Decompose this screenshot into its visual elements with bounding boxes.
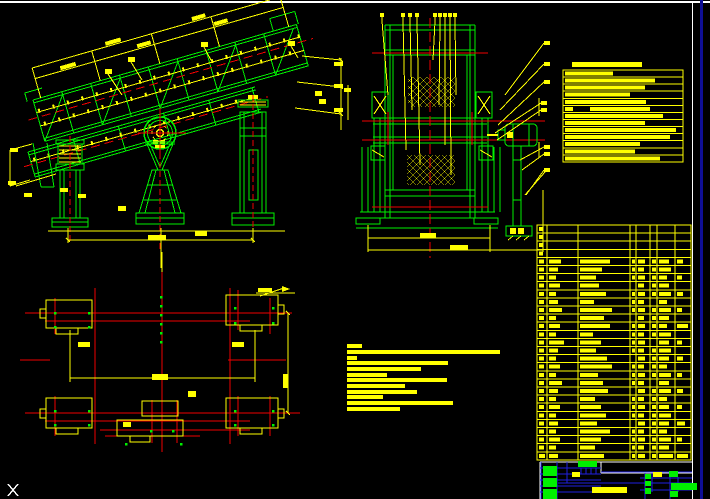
dim-text [78,342,90,347]
table-cell-text [539,454,545,458]
table-cell-text [539,397,544,401]
callout-balloon [544,152,550,156]
line [455,21,456,95]
table-cell-text [652,276,656,280]
table-cell-text [549,430,556,434]
requirement-line [347,401,453,405]
table-cell-text [638,405,645,409]
callout-marker [408,13,412,17]
table-cell-text [659,446,669,450]
table-cell-text [652,446,656,450]
table-cell-text [539,276,544,280]
table-cell-text [632,413,635,417]
dim-text [232,342,244,347]
table-cell-text [677,276,682,280]
table-cell-text [539,373,544,377]
table-cell-text [652,324,656,328]
tick-mark [150,430,153,433]
notes-line [565,79,655,83]
table-cell-text [638,413,644,417]
callout-marker [380,13,384,17]
table-cell-text [677,324,688,328]
requirement-line [347,361,448,365]
table-cell-text [549,259,561,263]
tick-mark [272,410,275,413]
table-cell-text [677,454,688,458]
table-cell-text [549,421,558,425]
table-cell-text [638,332,644,336]
callout-balloon [544,62,550,66]
table-cell-text [677,389,683,393]
table-cell-text [638,397,644,401]
table-cell-text [638,268,644,272]
table-cell-text [638,292,645,296]
parts-list-table [537,225,691,460]
table-cell-text [638,316,644,320]
requirement-line [347,373,387,377]
notes-line [565,135,670,139]
table-cell-text [677,340,682,344]
notes-line [565,107,573,111]
table-cell-text [632,397,635,401]
table-cell-text [659,381,669,385]
table-cell-text [659,268,671,272]
table-cell-text [549,381,562,385]
table-cell-text [580,446,595,450]
dim-text [148,235,166,240]
line [522,154,544,170]
table-cell-text [632,373,635,377]
tick-mark [54,312,57,315]
table-cell-text [549,397,556,401]
table-cell-text [659,332,671,336]
table-cell-text [539,381,544,385]
dim-text [152,374,168,380]
title-block [540,461,697,499]
title-text [592,487,627,493]
line [520,147,544,160]
dim-text [283,374,288,388]
dim-text [118,206,126,211]
table-cell-text [677,405,682,409]
table-cell-text [580,381,603,385]
table-cell-text [638,357,645,361]
table-cell-text [580,373,598,377]
table-cell-text [659,284,669,288]
table-cell-text [638,300,644,304]
table-cell-text [580,365,612,369]
table-cell-text [632,446,635,450]
side-view-dimensions [10,46,348,268]
line [450,21,451,175]
table-cell-text [539,405,544,409]
tick-mark [88,326,91,329]
notes-line [565,100,646,104]
table-cell-text [632,268,635,272]
callout-balloon [544,80,550,84]
table-cell-text [580,324,610,328]
tick-mark [272,307,275,310]
dim-text [8,181,16,185]
technical-notes-box [563,62,683,162]
tick-mark [160,332,163,335]
table-cell-text [677,292,683,296]
table-cell-text [580,430,610,434]
table-cell-text [539,365,544,369]
dim-text [105,69,112,74]
table-cell-text [580,357,607,361]
table-cell-text [549,324,560,328]
table-cell-text [652,454,656,458]
table-cell-text [580,316,604,320]
tick-mark [180,443,183,446]
table-cell-text [638,381,644,385]
table-cell-text [659,454,673,458]
table-cell-text [580,454,604,458]
table-cell-text [539,316,544,320]
north-flag [282,286,290,292]
table-cell-text [539,421,544,425]
table-cell-text [580,421,597,425]
dim-text [188,391,196,397]
table-cell-text [638,259,645,263]
callout-marker [453,13,457,17]
tick-mark [54,424,57,427]
screen-mesh-upper [408,77,455,107]
callout-balloon [544,41,550,45]
table-cell-text [549,268,558,272]
table-cell-text [539,251,543,255]
tick-mark [54,410,57,413]
table-cell-text [632,292,635,296]
dim-text [315,91,322,96]
table-cell-text [580,268,602,272]
table-cell-text [539,332,544,336]
table-cell-text [659,373,671,377]
table-cell-text [632,438,635,442]
notes-line [565,121,645,125]
dim-text [258,288,272,292]
tick-mark [172,430,175,433]
technical-requirements-list [347,344,500,411]
table-cell-text [580,284,599,288]
table-cell-text [659,421,669,425]
table-cell-text [549,446,556,450]
table-cell-text [659,365,667,369]
table-cell-text [652,413,656,417]
table-cell-text [549,308,562,312]
tick-mark [88,312,91,315]
dim-text [128,57,135,62]
table-cell-text [638,284,644,288]
dim-text [334,84,343,88]
table-cell-text [580,413,606,417]
callout-marker [401,13,405,17]
dim-text [10,148,18,152]
table-cell-text [539,227,543,231]
table-cell-text [549,389,558,393]
table-cell-text [632,381,635,385]
table-cell-text [652,332,656,336]
table-cell-text [638,340,645,344]
title-text [653,472,662,477]
callout-marker [433,13,437,17]
table-cell-text [652,357,656,361]
table-cell-text [632,276,635,280]
table-cell-text [632,349,635,353]
dim-text [195,231,207,236]
table-cell-text [549,349,558,353]
notes-line [565,93,630,97]
table-cell-text [539,243,543,247]
screen-mesh-lower [407,155,455,185]
table-cell-text [539,357,544,361]
notes-line [565,72,613,76]
table-cell-text [580,397,595,401]
table-cell-text [659,292,671,296]
table-cell-text [652,284,656,288]
table-cell-text [638,276,645,280]
table-cell-text [652,365,656,369]
title-text [645,481,651,486]
callout-balloon [544,168,550,172]
requirement-line [347,384,405,388]
table-cell-text [638,454,645,458]
requirement-line [347,407,400,411]
requirement-line [347,350,500,354]
table-cell-text [659,340,669,344]
table-cell-text [580,308,612,312]
table-cell-text [652,316,656,320]
dim-text [201,42,208,47]
table-cell-text [539,292,544,296]
notes-line [565,156,660,160]
table-cell-text [638,324,645,328]
notes-line [565,128,676,132]
plan-dimensions [70,252,295,415]
table-cell-text [638,421,645,425]
dim-text [60,188,68,192]
table-cell-text [638,389,645,393]
table-cell-text [549,365,560,369]
table-cell-text [632,324,635,328]
table-cell-text [677,438,682,442]
table-cell-text [652,430,656,434]
table-cell-text [659,413,671,417]
table-cell-text [580,259,610,263]
cad-viewport[interactable] [0,0,710,499]
table-cell-text [539,340,544,344]
table-cell-text [677,259,683,263]
notes-line [565,114,663,118]
tick-mark [272,424,275,427]
table-cell-text [549,405,560,409]
tick-mark [234,322,237,325]
table-cell-text [632,308,635,312]
notes-line [565,149,635,153]
line [497,110,541,140]
line [403,21,406,150]
window-edge [700,0,703,499]
table-cell-text [549,357,556,361]
notes-line [590,107,650,111]
table-cell-text [659,300,667,304]
tick-mark [160,341,163,344]
table-cell-text [549,340,564,344]
table-cell-text [539,308,544,312]
table-cell-text [580,349,596,353]
table-cell-text [549,316,556,320]
notes-title [572,62,642,67]
table-cell-text [549,300,558,304]
drawing-frame [0,2,710,499]
table-cell-text [580,389,608,393]
dim-text [24,193,32,197]
table-cell-text [549,373,556,377]
table-cell-text [539,349,544,353]
tick-mark [88,424,91,427]
title-text [669,471,678,477]
table-cell-text [549,454,558,458]
table-cell-text [539,300,544,304]
table-cell-text [659,349,671,353]
table-cell-text [677,357,683,361]
side-view [10,0,348,268]
table-cell-text [632,332,635,336]
dim-text [450,245,468,250]
dim-text [123,422,131,427]
table-cell-text [580,340,601,344]
tick-mark [160,296,163,299]
callout-marker [443,13,447,17]
dim-text [334,62,343,66]
tick-mark [234,424,237,427]
requirement-line [347,378,447,382]
table-cell-text [632,259,635,263]
table-cell-text [539,268,544,272]
requirement-line [347,367,421,371]
table-cell-text [580,438,601,442]
callout-marker [438,13,442,17]
tick-mark [234,410,237,413]
table-cell-text [632,365,635,369]
title-text [645,488,651,494]
title-text [645,474,651,479]
table-cell-text [549,284,560,288]
tick-mark [160,323,163,326]
tick-mark [88,410,91,413]
callout-balloon [541,101,547,105]
dim-text [334,108,343,112]
table-cell-text [652,268,656,272]
table-cell-text [659,397,667,401]
table-cell-text [677,308,682,312]
table-cell-text [539,324,544,328]
title-text [572,472,580,477]
table-cell-text [539,235,543,239]
title-text [543,478,557,487]
table-cell-text [580,332,593,336]
table-cell-text [632,454,635,458]
table-cell-text [632,300,635,304]
dim-text [420,233,436,238]
table-cell-text [659,276,667,280]
table-cell-text [539,389,544,393]
table-cell-text [632,430,635,434]
table-cell-text [659,438,671,442]
table-cell-text [638,308,645,312]
table-cell-text [652,292,656,296]
table-cell-text [652,397,656,401]
notes-line [565,86,645,90]
table-cell-text [638,438,645,442]
table-cell-text [549,332,556,336]
table-cell-text [638,373,645,377]
table-cell-text [652,349,656,353]
table-cell-text [659,389,671,393]
table-cell-text [652,259,656,263]
table-cell-text [652,421,656,425]
table-cell-text [659,324,667,328]
table-cell-text [677,421,685,425]
table-cell-text [580,300,594,304]
cad-drawing [0,0,710,499]
table-cell-text [659,308,671,312]
table-cell-text [659,357,669,361]
support-leg-right [232,95,274,243]
ucs-icon [8,484,18,496]
title-text [543,489,557,499]
table-cell-text [549,413,556,417]
table-cell-text [539,284,544,288]
requirement-line [347,395,383,399]
table-cell-text [539,430,544,434]
table-cell-text [549,292,556,296]
tick-mark [54,326,57,329]
requirement-line [347,344,362,348]
title-text [543,466,557,476]
table-cell-text [659,316,669,320]
table-cell-text [632,405,635,409]
tick-mark [234,307,237,310]
support-leg-left [52,136,88,243]
tick-mark [125,443,128,446]
table-cell-text [652,438,656,442]
table-cell-text [638,430,644,434]
table-cell-text [632,340,635,344]
table-cell-text [580,292,606,296]
table-cell-text [580,276,596,280]
plan-view [20,252,300,452]
title-text [578,461,597,467]
table-cell-text [652,389,656,393]
requirement-line [347,390,417,394]
title-text [671,483,697,490]
table-cell-text [580,405,601,409]
table-cell-text [659,259,669,263]
callout-marker [448,13,452,17]
callout-balloon [541,108,547,112]
table-cell-text [659,430,667,434]
dim-text [319,99,326,104]
table-cell-text [652,373,656,377]
item-callouts [380,13,550,195]
table-cell-text [652,405,656,409]
table-cell-text [549,438,560,442]
tick-mark [160,305,163,308]
dim-text [288,41,295,46]
line [526,170,544,195]
